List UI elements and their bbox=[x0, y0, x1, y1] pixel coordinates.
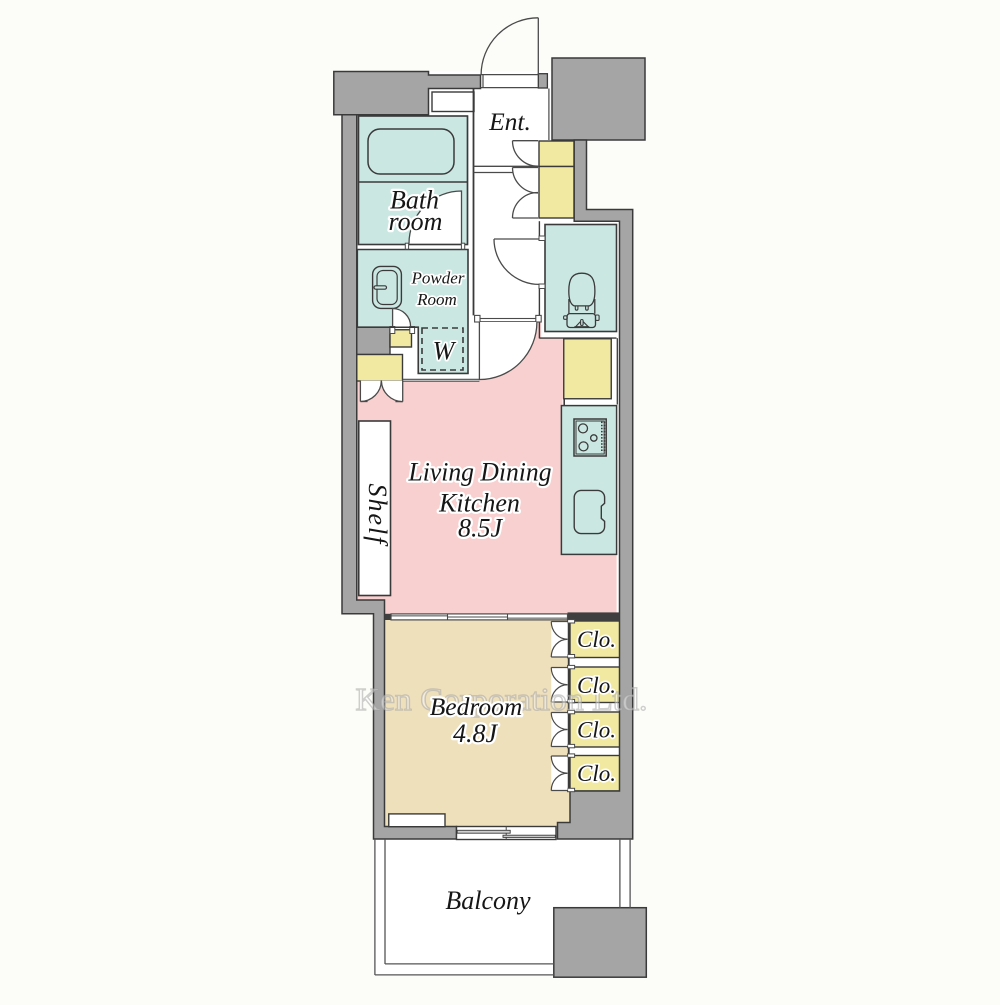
svg-text:Clo.: Clo. bbox=[577, 627, 616, 652]
svg-text:Shelf: Shelf bbox=[363, 484, 392, 548]
svg-text:Living Dining: Living Dining bbox=[408, 458, 552, 487]
svg-text:Powder: Powder bbox=[411, 269, 465, 288]
svg-text:Bedroom: Bedroom bbox=[430, 692, 523, 721]
svg-text:Clo.: Clo. bbox=[577, 673, 616, 698]
svg-text:Room: Room bbox=[416, 290, 457, 309]
svg-text:W: W bbox=[433, 337, 457, 366]
svg-text:Ent.: Ent. bbox=[488, 107, 531, 136]
svg-text:Clo.: Clo. bbox=[577, 761, 616, 786]
svg-text:4.8J: 4.8J bbox=[453, 719, 499, 748]
svg-text:Clo.: Clo. bbox=[577, 718, 616, 743]
svg-text:8.5J: 8.5J bbox=[458, 514, 504, 543]
svg-text:room: room bbox=[389, 207, 443, 236]
svg-text:Balcony: Balcony bbox=[445, 886, 531, 915]
